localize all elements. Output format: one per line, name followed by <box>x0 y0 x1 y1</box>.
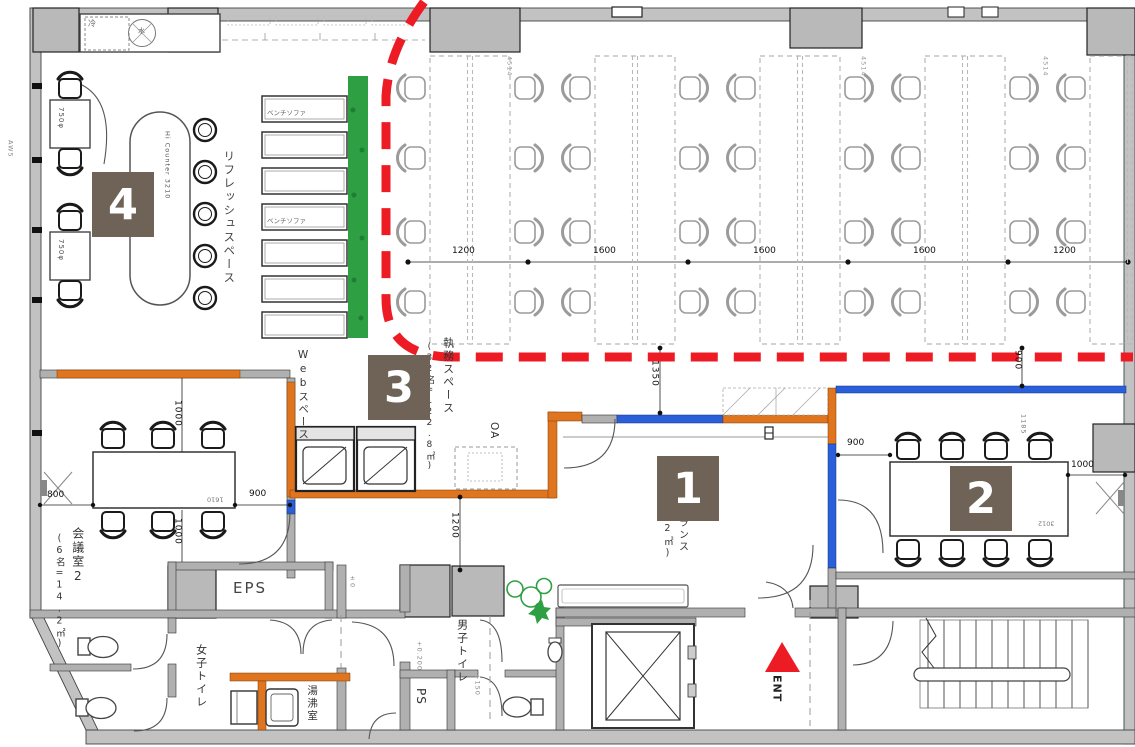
stairs <box>914 618 1088 708</box>
dim-m2-top: 1000 <box>172 400 182 427</box>
entrance-arrow <box>765 642 800 672</box>
marker-2: 2 <box>950 466 1012 531</box>
work-space-label: 執務スペース <box>441 337 454 415</box>
dim-desk-pitch-1: 1200 <box>452 246 475 256</box>
ent-label: ENT <box>770 675 783 702</box>
dim-m2-bottom: 1000 <box>172 518 182 545</box>
dim-desk-pitch-5: 1200 <box>1053 246 1076 256</box>
dim-desk-width-2: 4514 <box>859 56 866 77</box>
bench-sofa-label-b: ベンチソファ <box>267 218 306 225</box>
refresh-space-label: リフレッシュスペース <box>222 150 235 285</box>
intercom-symbol <box>765 427 773 439</box>
dim-desk-pitch-3: 1600 <box>753 246 776 256</box>
marker-4: 4 <box>92 172 154 237</box>
round-table-label-b: 750φ <box>57 239 65 261</box>
bench-sofa-label-a: ベンチソファ <box>267 110 306 117</box>
level-mark-c: +150 <box>473 674 480 696</box>
dim-mr2-right: 1000 <box>1071 460 1094 470</box>
oa-label: OA <box>488 422 500 439</box>
floor-plan: 4 3 1 2 リフレッシュスペース Webスペース 執務スペース (32名=1… <box>0 0 1135 747</box>
lounge-counter <box>558 585 688 607</box>
womens-toilet-label: 女子トイレ <box>194 644 207 709</box>
refresh-tables <box>50 100 90 280</box>
greenery-wall <box>348 76 368 338</box>
oa-copier <box>455 447 517 489</box>
plant <box>507 579 552 625</box>
web-booths <box>296 427 415 491</box>
dim-mr2-left: 900 <box>847 438 864 448</box>
dim-corridor: 1200 <box>449 512 459 539</box>
wall-note-label: AW5 <box>6 140 13 158</box>
hot-water-room-label: 湯沸室 <box>306 685 318 723</box>
marker-3: 3 <box>368 355 430 420</box>
entrance-label-fragment: ランス <box>676 517 688 553</box>
entrance-area-fragment: 2㎡) <box>661 523 672 561</box>
mens-toilet-label: 男子トイレ <box>455 619 468 684</box>
meeting-room-2-capacity: (6名=14.2㎡) <box>53 533 64 650</box>
meeting-tables <box>93 452 1068 536</box>
dim-desk-width-1: 4514 <box>505 56 512 77</box>
pipe-space-label: PS <box>413 688 427 705</box>
dim-desk-pitch-2: 1600 <box>593 246 616 256</box>
hi-counter-label: Hi Counter 3210 <box>163 131 170 199</box>
dim-m2-left: 800 <box>47 490 64 500</box>
floor-plan-drawing <box>0 0 1135 747</box>
eps-label: EPS <box>233 580 267 597</box>
dim-m2-right: 900 <box>249 489 266 499</box>
dim-desk-pitch-4: 1600 <box>913 246 936 256</box>
dim-mr2-table: 3012 <box>1038 519 1055 526</box>
water-label: 水 <box>138 27 145 35</box>
dim-mr2-top: 1185 <box>1019 414 1026 435</box>
dim-m2-table: 1610 <box>207 495 224 502</box>
web-space-label: Webスペース <box>297 349 309 441</box>
dim-office-right: 900 <box>1012 350 1022 370</box>
level-mark-b: +0.200 <box>415 641 422 671</box>
dim-entrance-depth: 1350 <box>649 360 659 387</box>
meeting-room-2-label: 会議室2 <box>70 527 84 585</box>
dim-desk-width-3: 4514 <box>1041 56 1048 77</box>
level-mark-a: ±0 <box>348 574 355 588</box>
kitchen-counter <box>80 14 220 52</box>
elevator <box>592 624 696 728</box>
fridge-label: 冷 <box>88 19 96 28</box>
marker-1: 1 <box>657 456 719 521</box>
round-table-label-a: 750φ <box>57 107 65 129</box>
